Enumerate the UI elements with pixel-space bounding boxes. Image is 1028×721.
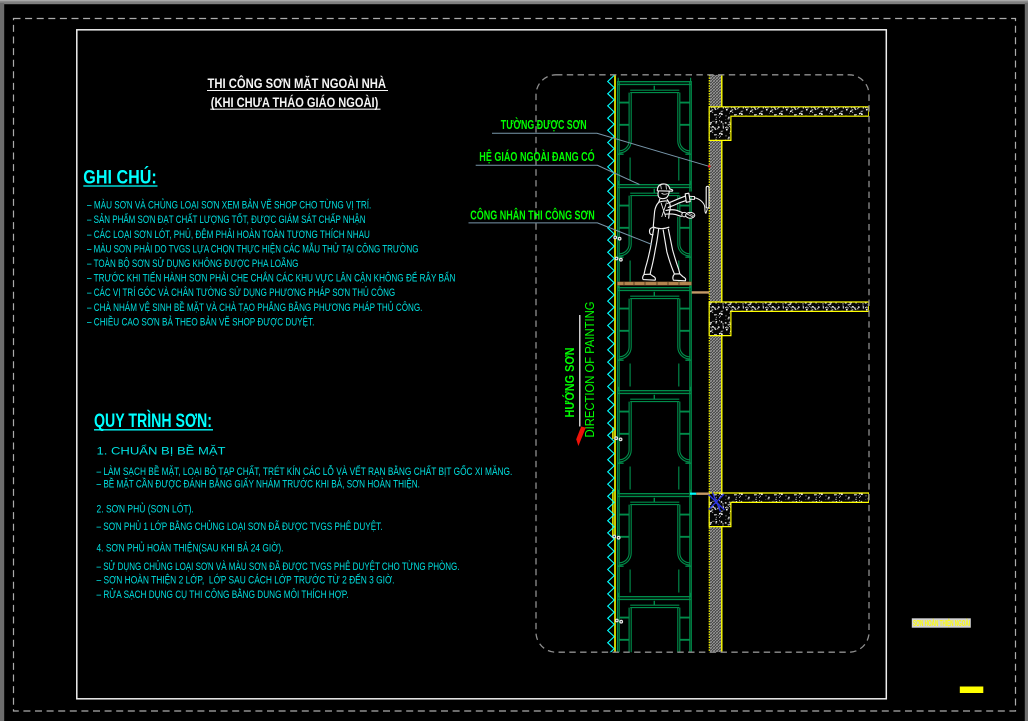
svg-text:2. SƠN PHỦ (SƠN LÓT).: 2. SƠN PHỦ (SƠN LÓT). [97, 503, 194, 516]
svg-text:– SƠN PHỦ 1 LỚP BẰNG CHỦNG LOẠ: – SƠN PHỦ 1 LỚP BẰNG CHỦNG LOẠI SƠN ĐÃ Đ… [97, 520, 383, 533]
svg-text:– SỬ DỤNG CHỦNG LOẠI SƠN VÀ MÀ: – SỬ DỤNG CHỦNG LOẠI SƠN VÀ MÀU SƠN ĐÃ Đ… [97, 560, 460, 573]
svg-text:DIRECTION OF PAINTING: DIRECTION OF PAINTING [583, 302, 597, 438]
svg-text:– CÁC VỊ TRÍ GÓC VÀ CHÂN TƯỜNG: – CÁC VỊ TRÍ GÓC VÀ CHÂN TƯỜNG SỬ DỤNG P… [87, 286, 395, 299]
svg-text:– LÀM SẠCH BỀ MẶT, LOẠI BỎ TẠP: – LÀM SẠCH BỀ MẶT, LOẠI BỎ TẠP CHẤT, TRÉ… [97, 464, 513, 478]
svg-text:– MÀU SƠN PHẢI DO TVGS LỰA CHỌ: – MÀU SƠN PHẢI DO TVGS LỰA CHỌN THỰC HIỆ… [87, 242, 419, 255]
svg-text:– CHIỀU CAO SƠN BẢ THEO BẢN VẼ: – CHIỀU CAO SƠN BẢ THEO BẢN VẼ SHOP ĐƯỢC… [87, 315, 314, 328]
svg-text:– RỬA SẠCH DỤNG CỤ THI CÔNG BẰ: – RỬA SẠCH DỤNG CỤ THI CÔNG BẰNG DUNG MÔ… [97, 588, 349, 601]
svg-text:– TRƯỚC KHI TIẾN HÀNH SƠN PHẢI: – TRƯỚC KHI TIẾN HÀNH SƠN PHẢI CHE CHẮN … [87, 272, 455, 285]
svg-text:THI CÔNG SƠN MẶT NGOÀI NHÀ: THI CÔNG SƠN MẶT NGOÀI NHÀ [208, 74, 387, 91]
svg-text:– SẢN PHẨM SƠN ĐẠT CHẤT LƯỢNG: – SẢN PHẨM SƠN ĐẠT CHẤT LƯỢNG TỐT, ĐƯỢC … [87, 212, 366, 226]
svg-text:TƯỜNG ĐƯỢC SƠN: TƯỜNG ĐƯỢC SƠN [501, 117, 587, 132]
svg-text:HỆ GIÁO NGOÀI ĐANG CÓ: HỆ GIÁO NGOÀI ĐANG CÓ [479, 149, 595, 164]
svg-text:– BỀ MẶT CẦN ĐƯỢC ĐÁNH BẰNG GI: – BỀ MẶT CẦN ĐƯỢC ĐÁNH BẰNG GIẤY NHÁM TR… [97, 478, 420, 491]
svg-text:CÔNG NHÂN THI CÔNG SƠN: CÔNG NHÂN THI CÔNG SƠN [470, 207, 594, 222]
svg-text:(KHI CHƯA THÁO GIÁO NGOÀI): (KHI CHƯA THÁO GIÁO NGOÀI) [211, 94, 378, 110]
svg-text:HƯỚNG SƠN: HƯỚNG SƠN [562, 348, 577, 418]
svg-text:4. SƠN PHỦ HOÀN THIỆN(SAU KHI: 4. SƠN PHỦ HOÀN THIỆN(SAU KHI BẢ 24 GIỜ)… [97, 542, 284, 555]
svg-text:1. CHUẨN BỊ BỀ MẶT: 1. CHUẨN BỊ BỀ MẶT [97, 445, 226, 458]
svg-text:– TOÀN BỘ SƠN SỬ DỤNG KHÔNG ĐƯ: – TOÀN BỘ SƠN SỬ DỤNG KHÔNG ĐƯỢC PHA LOÃ… [87, 257, 298, 270]
svg-text:GHI CHÚ:: GHI CHÚ: [83, 167, 157, 189]
svg-text:– CHÀ NHÁM VỆ SINH BỀ MẶT VÀ C: – CHÀ NHÁM VỆ SINH BỀ MẶT VÀ CHÀ TẠO PHẲ… [87, 301, 422, 314]
svg-text:QUY TRÌNH SƠN:: QUY TRÌNH SƠN: [94, 410, 212, 432]
svg-text:– CÁC LOẠI SƠN LÓT, PHỦ, ĐỆM P: – CÁC LOẠI SƠN LÓT, PHỦ, ĐỆM PHẢI HOÀN T… [87, 228, 370, 241]
svg-text:– SƠN HOÀN THIỆN 2 LỚP, LỚP S: – SƠN HOÀN THIỆN 2 LỚP, LỚP SAU CÁCH LỚP… [97, 574, 395, 587]
svg-text:– MÀU SƠN VÀ CHỦNG LOẠI SƠN XE: – MÀU SƠN VÀ CHỦNG LOẠI SƠN XEM BẢN VẼ S… [87, 199, 371, 212]
svg-text:SƠN HOÀN THIỆN NGOÀI: SƠN HOÀN THIỆN NGOÀI [913, 617, 970, 628]
